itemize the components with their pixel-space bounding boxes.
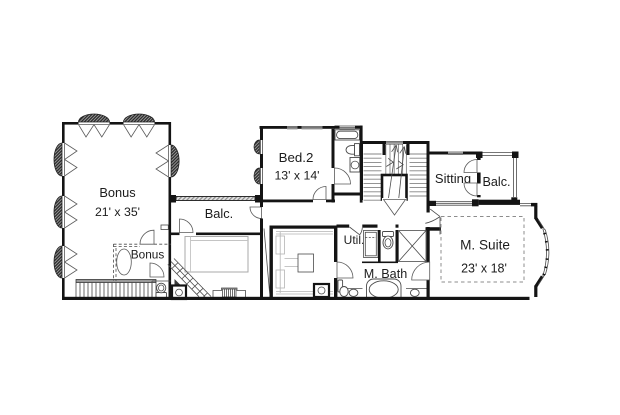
- svg-text:23' x 18': 23' x 18': [461, 262, 507, 276]
- svg-text:Bonus: Bonus: [131, 248, 165, 262]
- svg-text:Bed.2: Bed.2: [279, 150, 314, 165]
- svg-text:Bonus: Bonus: [99, 185, 135, 200]
- svg-text:21' x 35': 21' x 35': [95, 205, 140, 219]
- svg-text:Util.: Util.: [344, 233, 365, 247]
- svg-text:M. Suite: M. Suite: [460, 238, 510, 253]
- svg-text:13' x 14': 13' x 14': [274, 169, 319, 183]
- svg-text:Balc.: Balc.: [483, 175, 511, 189]
- svg-text:Balc.: Balc.: [205, 206, 233, 221]
